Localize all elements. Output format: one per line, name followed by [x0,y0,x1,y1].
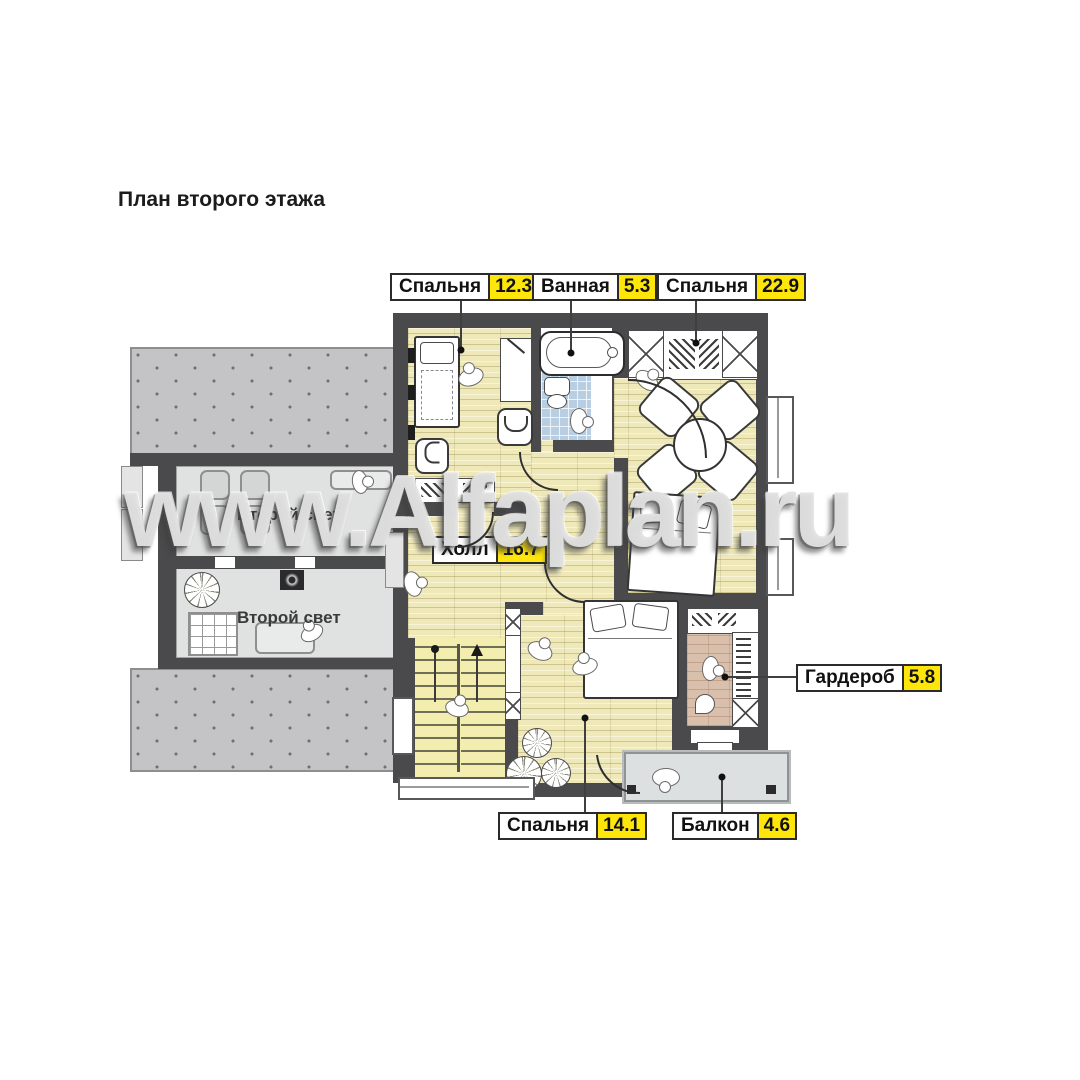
armchair-detail [504,416,528,432]
closet-hatch [692,613,712,626]
room-label-wardrobe: Гардероб 5.8 [796,664,942,692]
closet-x-symbol [722,330,758,378]
room-label-bedroom-22: Спальня 22.9 [657,273,806,301]
room-area: 4.6 [759,812,797,840]
window-strip [398,777,535,800]
pillow [632,603,670,632]
closet-hatch [699,339,719,369]
bathroom-door-threshold [541,440,553,452]
room-name: Спальня [657,273,757,301]
bathroom-floor-strip [591,372,612,440]
person-figure [570,408,588,434]
watermark: www.Alfaplan.ru [124,455,851,570]
closet-hatch [736,671,751,697]
bathtub [539,331,625,376]
pillow [420,342,454,364]
roof-hatch-top [130,347,397,457]
page-title: План второго этажа [118,188,325,212]
desk [500,338,532,402]
closet-x-symbol [505,692,521,720]
room-label-bedroom-14: Спальня 14.1 [498,812,647,840]
room-label-balcony: Балкон 4.6 [672,812,797,840]
balcony-post [627,785,636,794]
closet-hatch [736,638,751,666]
wall-shelf [408,425,415,440]
room-name: Спальня [498,812,598,840]
person-figure [652,768,680,787]
balcony-post [766,785,776,794]
plant [522,728,552,758]
bed-single [414,336,460,428]
wall-shelf [408,385,415,400]
room-area: 14.1 [598,812,647,840]
room-name: Ванная [532,273,619,301]
plant [541,758,571,788]
room-area: 5.8 [904,664,942,692]
fireplace [280,570,304,590]
bedroom-22-door-gap [614,378,628,458]
plant [184,572,220,608]
bedroom-14-door-gap [543,602,585,615]
wardrobe-closet-top [687,608,759,634]
room-name: Гардероб [796,664,904,692]
room-label-bedroom-12: Спальня 12.3 [390,273,539,301]
table [188,612,238,656]
second-light-label-lower: Второй свет [237,608,341,628]
closet-x-symbol [732,698,759,728]
room-name: Спальня [390,273,490,301]
closet-x-symbol [505,608,521,636]
armchair [497,408,533,446]
bathtub-inner [546,337,612,368]
room-label-bathroom: Ванная 5.3 [532,273,657,301]
closet-hatch [669,339,695,369]
bed-double [583,600,679,699]
hall-floor-stair-landing [408,602,505,638]
closet-hatch [718,613,736,626]
toilet-bowl [547,394,567,409]
blanket [588,638,672,695]
room-name: Балкон [672,812,759,840]
desk-lamp [507,338,525,354]
bathtub-drain [607,347,618,358]
roof-hatch-bottom [130,668,397,772]
window-mullion [400,786,529,788]
floor-plan-image: План второго этажа Второй свет Второй св… [0,0,1080,1080]
wall-shelf [408,348,415,363]
room-area: 22.9 [757,273,806,301]
room-area: 5.3 [619,273,657,301]
blanket [421,370,453,420]
pillow [589,603,627,633]
window [392,697,414,755]
stool [695,694,715,714]
balcony [622,750,791,804]
